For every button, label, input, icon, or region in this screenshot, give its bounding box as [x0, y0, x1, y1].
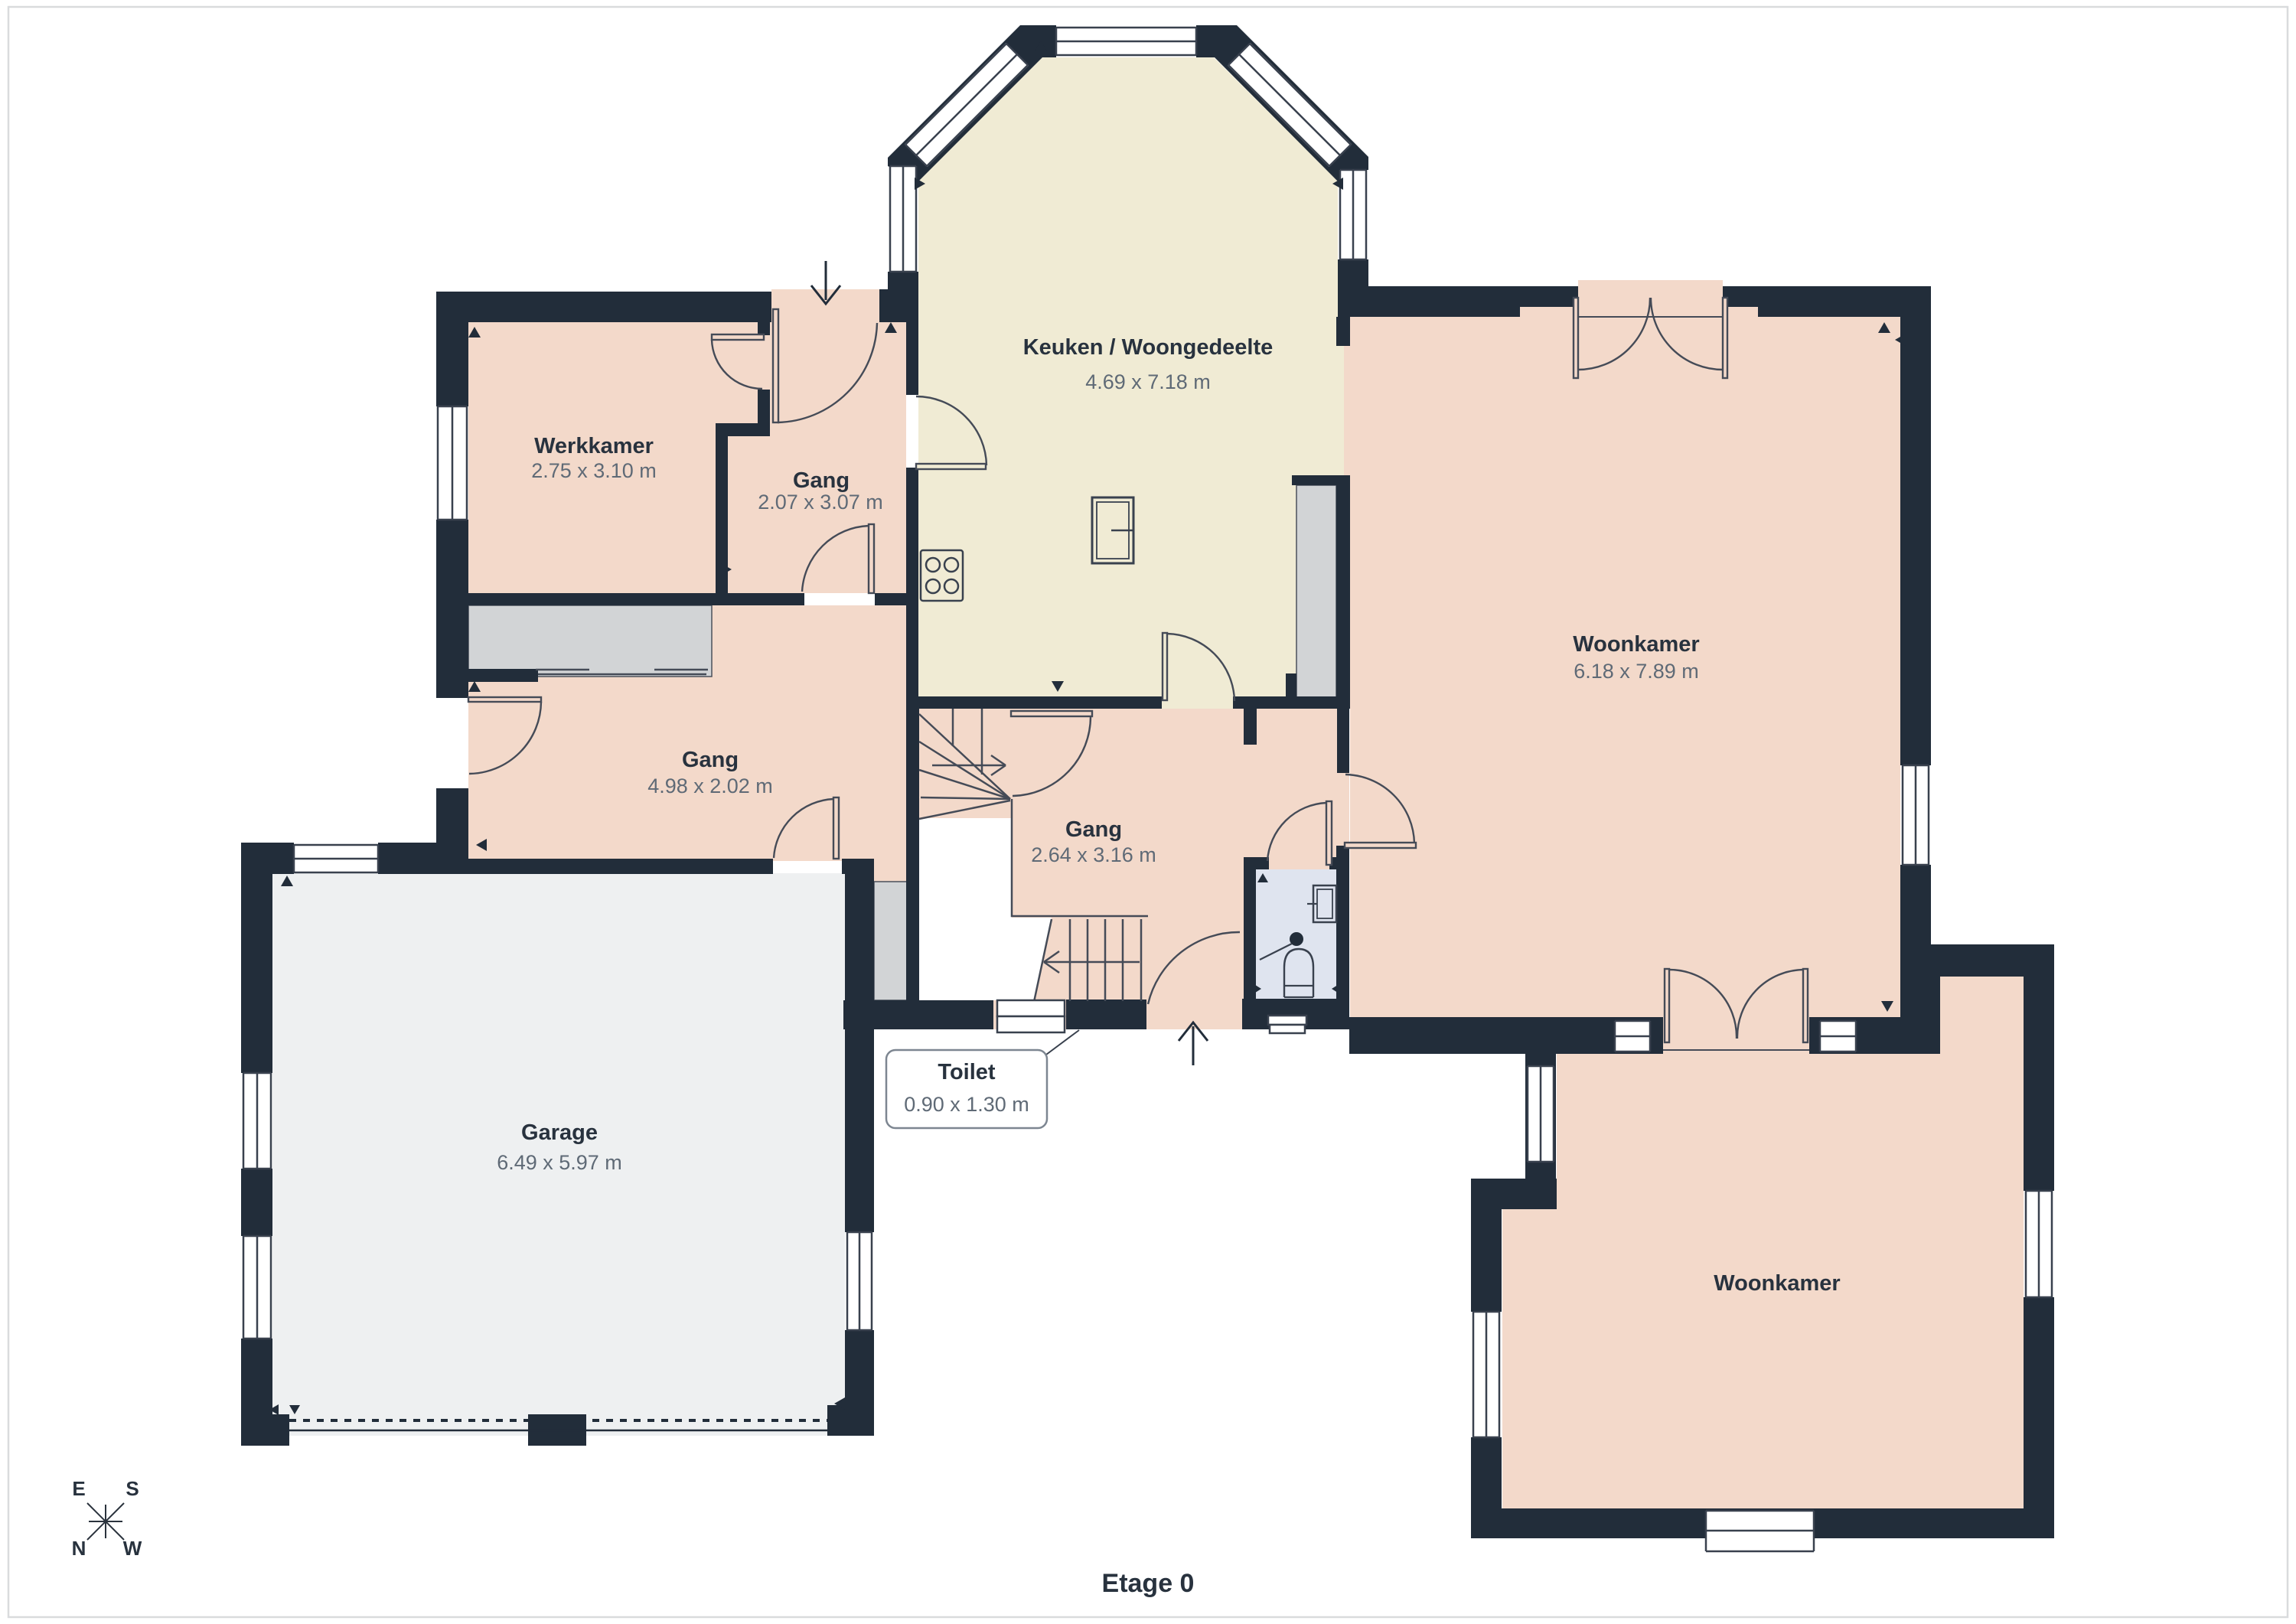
svg-text:N: N [72, 1537, 86, 1560]
svg-text:4.98 x 2.02 m: 4.98 x 2.02 m [647, 774, 773, 797]
svg-text:Werkkamer: Werkkamer [534, 434, 654, 458]
svg-text:0.90 x 1.30 m: 0.90 x 1.30 m [904, 1093, 1029, 1116]
svg-text:Gang: Gang [793, 468, 850, 493]
svg-text:Gang: Gang [682, 748, 739, 772]
svg-text:2.75 x 3.10 m: 2.75 x 3.10 m [531, 459, 657, 482]
svg-text:6.49 x 5.97 m: 6.49 x 5.97 m [497, 1151, 622, 1174]
svg-text:Etage 0: Etage 0 [1102, 1569, 1195, 1598]
svg-text:2.07 x 3.07 m: 2.07 x 3.07 m [758, 491, 883, 514]
svg-text:4.69 x 7.18 m: 4.69 x 7.18 m [1085, 370, 1211, 393]
svg-text:Toilet: Toilet [938, 1060, 996, 1084]
svg-text:Garage: Garage [521, 1120, 598, 1145]
svg-text:Woonkamer: Woonkamer [1573, 632, 1699, 657]
svg-text:Keuken / Woongedeelte: Keuken / Woongedeelte [1023, 335, 1274, 360]
svg-text:S: S [126, 1477, 139, 1500]
svg-text:Gang: Gang [1065, 817, 1122, 842]
svg-text:2.64 x 3.16 m: 2.64 x 3.16 m [1031, 843, 1156, 866]
svg-text:E: E [72, 1477, 85, 1500]
svg-text:Woonkamer: Woonkamer [1714, 1271, 1840, 1296]
svg-text:W: W [123, 1537, 142, 1560]
svg-text:6.18 x 7.89 m: 6.18 x 7.89 m [1574, 660, 1699, 683]
